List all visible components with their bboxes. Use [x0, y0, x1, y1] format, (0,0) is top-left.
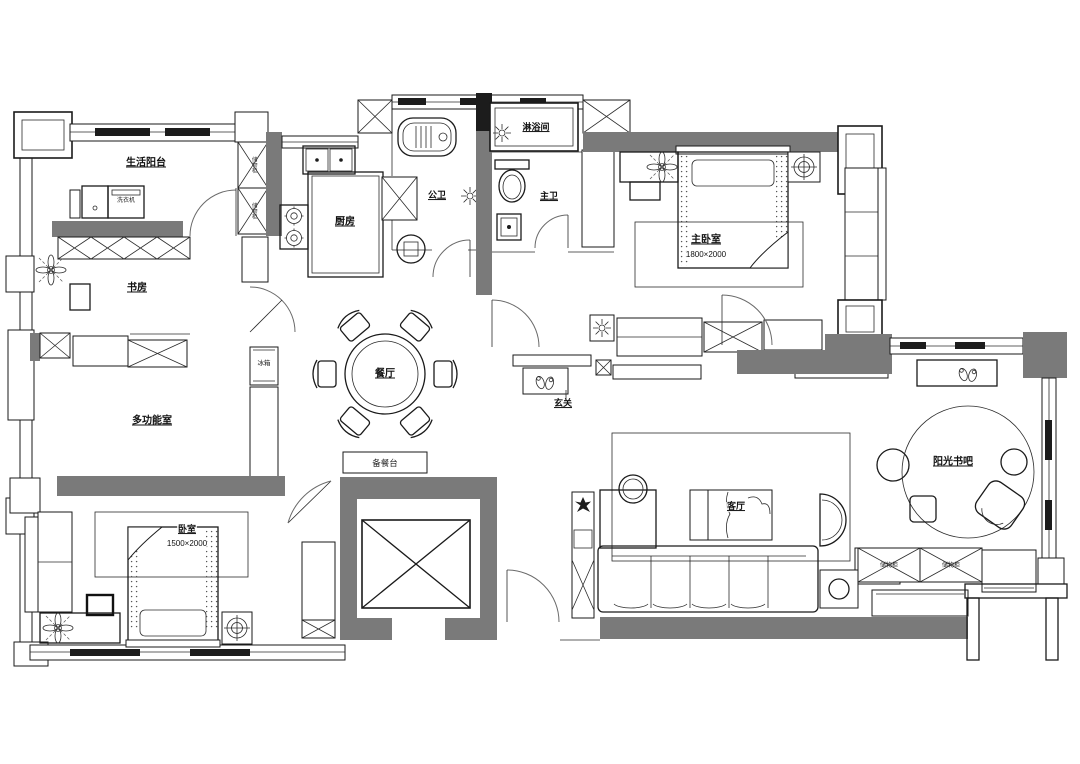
label-bedroom-dim: 1500×2000 — [167, 540, 207, 548]
label-public-bath: 公卫 — [427, 191, 447, 201]
square-stool — [910, 496, 936, 522]
label-study: 书房 — [126, 283, 148, 294]
side-table — [619, 475, 647, 503]
linen-closet — [582, 150, 614, 247]
label-master-bath: 主卫 — [539, 192, 559, 202]
label-washer: 洗衣机 — [117, 198, 135, 204]
label-dining: 餐厅 — [374, 369, 396, 380]
gas-stove — [280, 205, 308, 249]
ceiling-fan-icon — [43, 613, 73, 643]
round-stool — [1001, 449, 1027, 475]
armchair — [820, 494, 846, 546]
entry-door-arc — [492, 300, 539, 347]
master-bath-door-arc — [535, 215, 568, 248]
master-bedroom — [583, 100, 892, 378]
label-master-bedroom: 主卧室 — [690, 235, 722, 246]
slippers-icon — [958, 367, 978, 382]
label-serving-counter: 备餐台 — [372, 459, 398, 468]
bathtub-icon — [398, 118, 456, 156]
window-bench — [917, 360, 997, 386]
elevator — [340, 452, 600, 640]
round-rug — [902, 406, 1034, 538]
toilet-icon — [495, 160, 529, 202]
book-bar — [858, 332, 1067, 660]
bedroom-door-leaf — [288, 481, 331, 523]
ceiling-fan-icon — [647, 152, 677, 182]
label-shower-room: 淋浴间 — [521, 123, 550, 133]
label-book-bar: 阳光书吧 — [932, 457, 974, 468]
label-storage-3: 储物柜 — [250, 157, 256, 174]
label-bedroom: 卧室 — [177, 525, 197, 535]
tall-cabinets — [235, 112, 282, 282]
wardrobe — [38, 512, 72, 612]
dressing-table — [620, 152, 678, 182]
fridge-and-pantry — [250, 287, 295, 477]
entry-mat — [513, 355, 591, 366]
desk — [965, 584, 1067, 660]
lounge-chair — [971, 477, 1028, 533]
label-kitchen: 厨房 — [334, 217, 356, 228]
hall-door-arc — [507, 570, 559, 622]
label-balcony: 生活阳台 — [125, 158, 167, 169]
bedroom — [10, 476, 335, 647]
label-living: 客厅 — [726, 502, 746, 512]
label-master-bedroom-dim: 1800×2000 — [686, 251, 726, 259]
public-bath-door-arc — [433, 240, 470, 277]
balcony — [52, 186, 236, 237]
label-storage-2: 储物柜 — [942, 563, 960, 569]
kitchen — [280, 100, 477, 277]
shoe-bench — [523, 368, 568, 394]
closet — [302, 542, 335, 622]
label-fridge: 冰箱 — [258, 361, 271, 368]
label-storage-1: 储物柜 — [880, 563, 898, 569]
coffee-table — [690, 490, 772, 540]
vanity-sink-icon — [497, 214, 521, 240]
pedestal-sink-icon — [397, 235, 425, 263]
kitchen-sink — [303, 146, 355, 174]
floor-plan: 生活阳台 书房 多功能室 厨房 公卫 淋浴间 主卫 主卧室 1800×2000 … — [0, 0, 1080, 764]
floor-plan-drawing — [0, 0, 1080, 764]
multi-room — [30, 333, 190, 367]
balcony-door-arc — [190, 190, 236, 236]
wardrobe — [845, 168, 886, 300]
label-multi-room: 多功能室 — [131, 416, 173, 427]
tv-cabinet — [40, 613, 120, 643]
ceiling-fan-icon — [36, 255, 66, 285]
display-cabinet — [572, 492, 594, 618]
label-foyer: 玄关 — [553, 399, 573, 409]
study — [36, 237, 190, 310]
storage-cabinets — [858, 548, 1036, 592]
shoe-cabinet — [613, 365, 701, 379]
label-storage-4: 储物柜 — [250, 203, 256, 220]
